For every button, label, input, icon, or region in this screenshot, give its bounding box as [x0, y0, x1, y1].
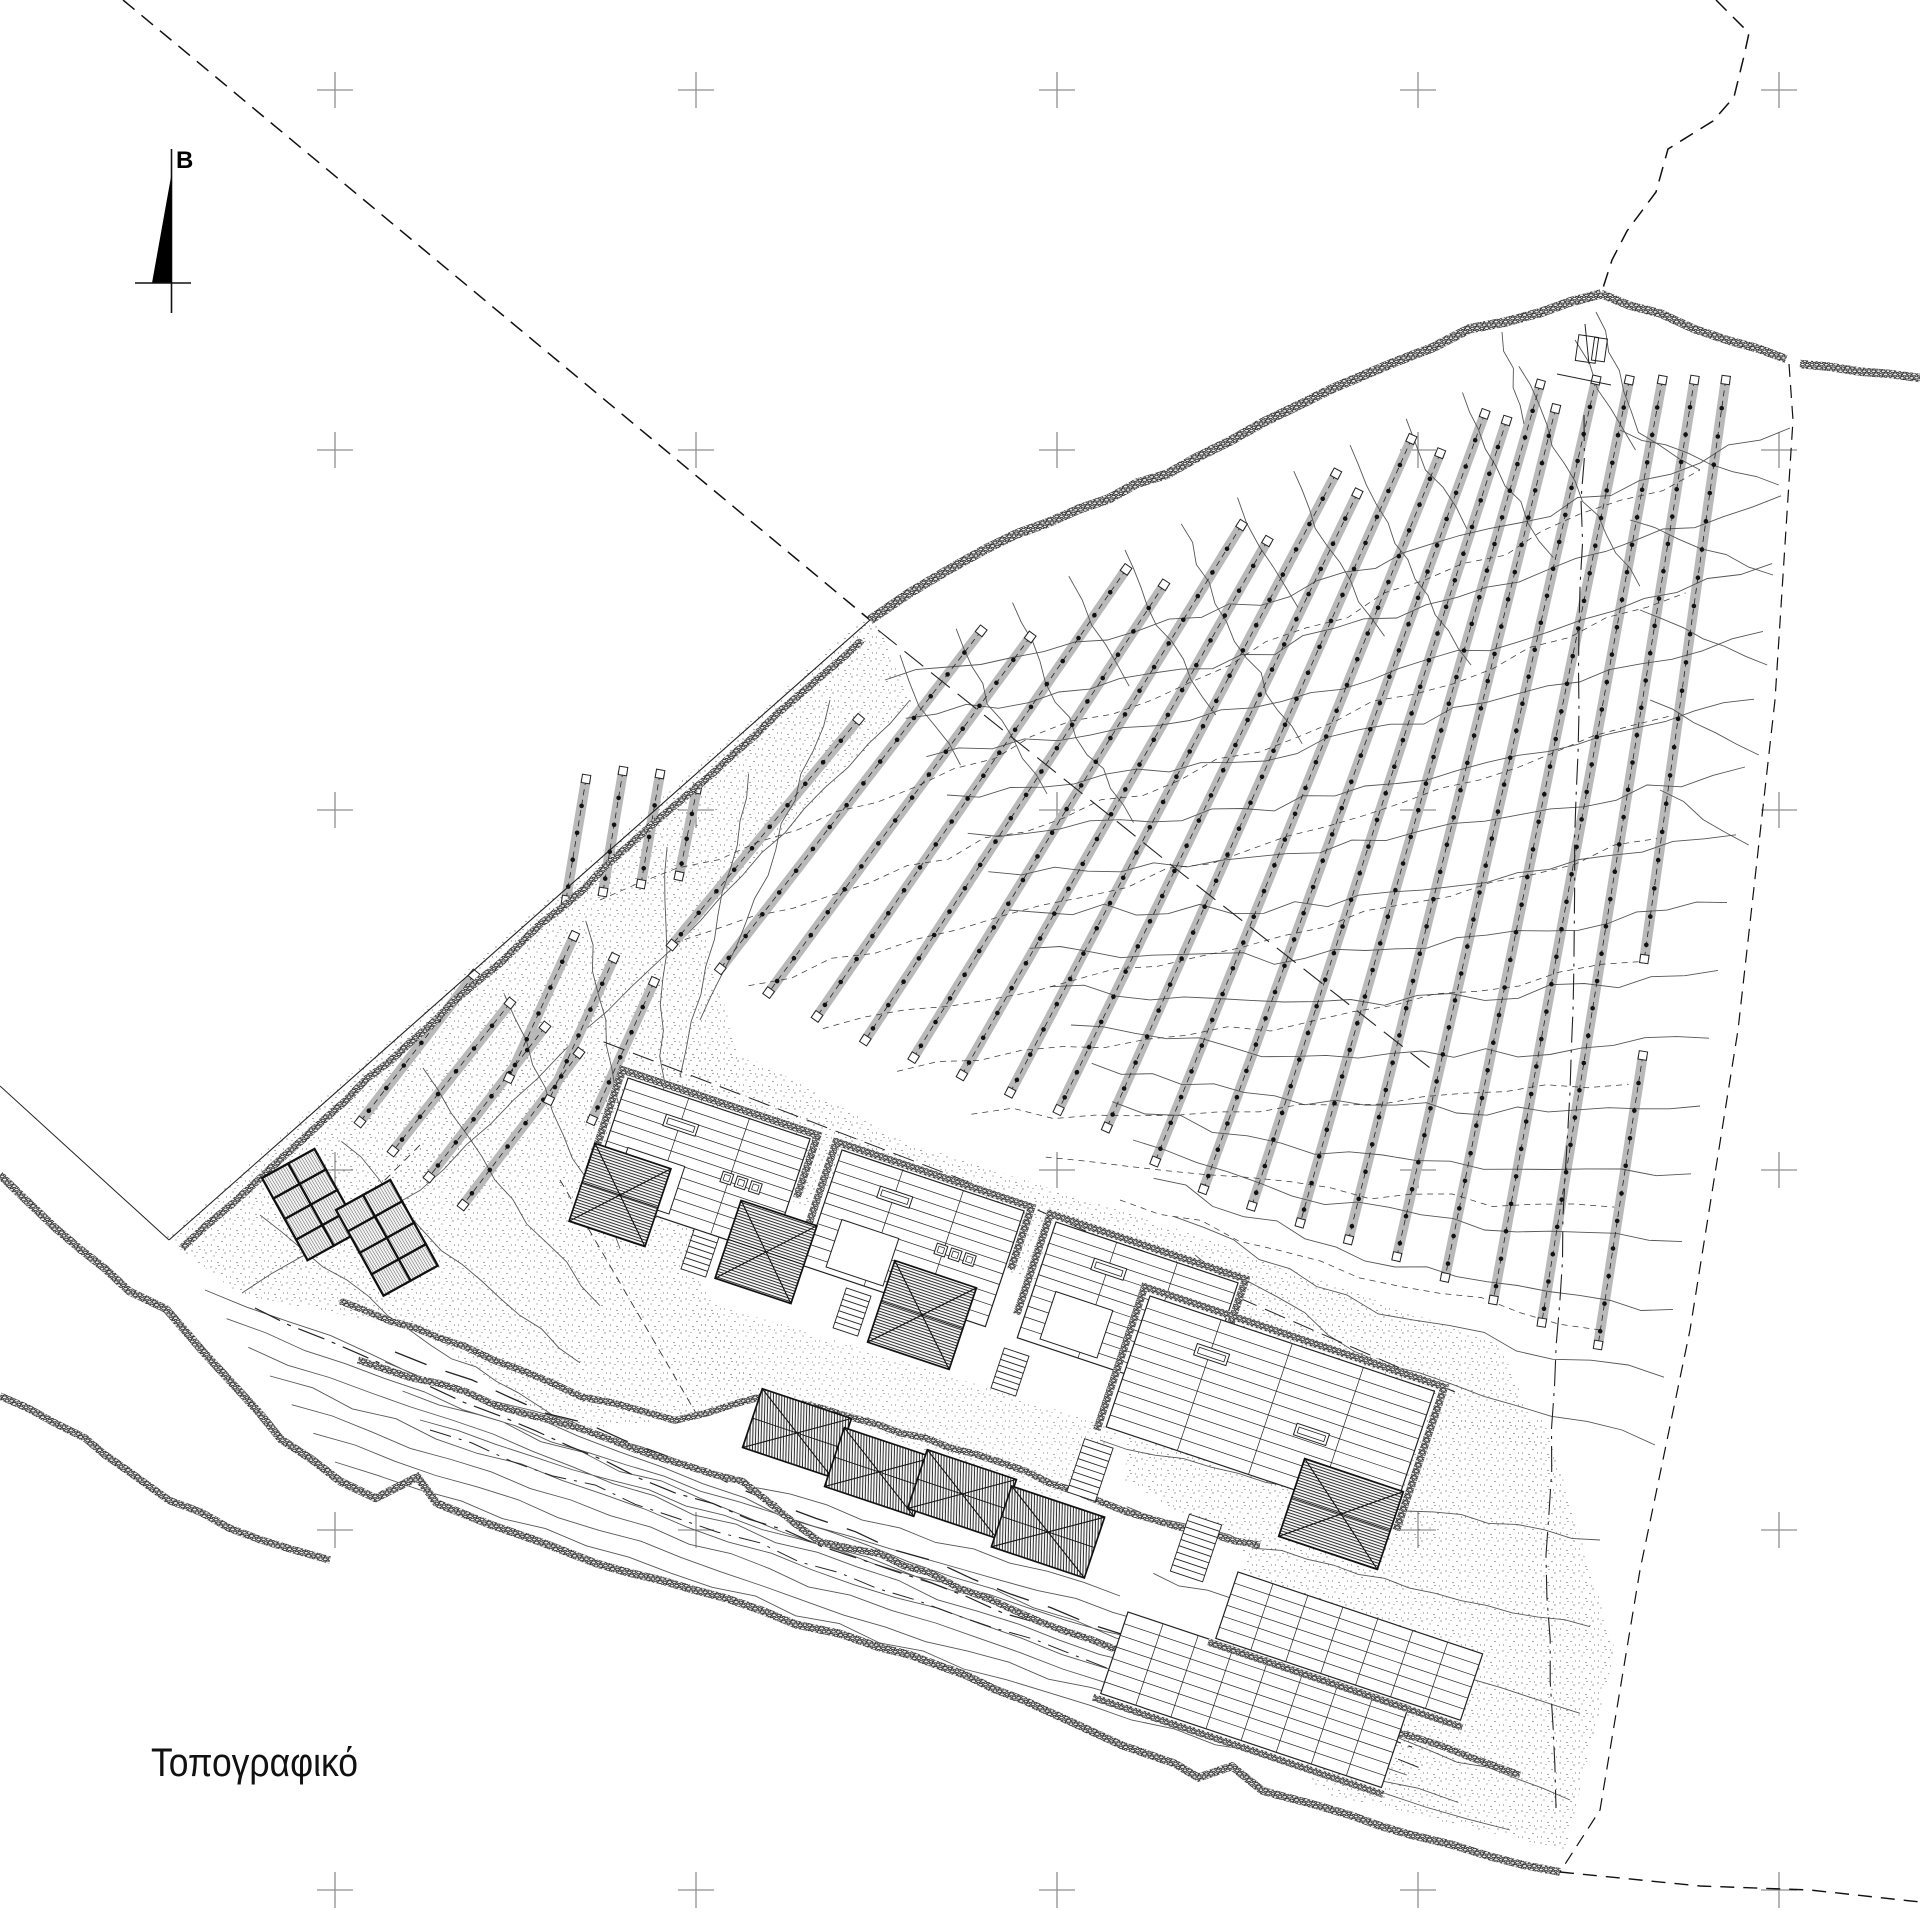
svg-text:B: B [176, 147, 193, 174]
svg-text:Τοπογραφικό: Τοπογραφικό [151, 1741, 358, 1785]
